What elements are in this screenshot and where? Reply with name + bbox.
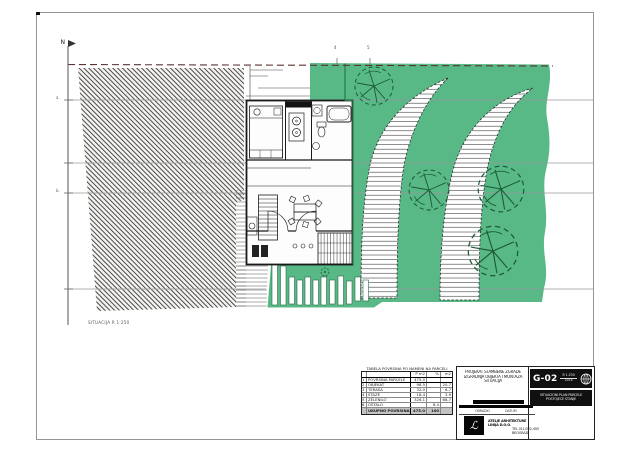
table-cell: 32.0	[411, 388, 427, 392]
table-cell: 326.1	[411, 398, 427, 402]
table-cell: TERASA	[367, 388, 411, 392]
col-header: %	[427, 372, 441, 377]
drawing-sheet: N a. b. 4 5 SITUACIJA R 1:250 TABELA POV…	[0, 0, 640, 452]
logo-mark: ℒ	[470, 419, 478, 432]
table-cell: 8.4	[427, 403, 441, 407]
table-cell: POVRSINA PARCELE	[367, 378, 411, 382]
table-cell: 475.0	[411, 408, 427, 414]
firm-name: ATELJE ARHITEKTURE LINIJA D.O.O.	[488, 419, 530, 427]
table-cell	[411, 403, 427, 407]
table-cell	[441, 378, 452, 382]
contact-line: BEOGRAD	[512, 431, 552, 435]
signature-label: DATUM	[505, 409, 516, 413]
north-arrow-icon: N	[61, 39, 77, 325]
scale-sub: 2014	[560, 379, 576, 383]
table-cell	[441, 408, 452, 414]
scale-note: SITUACIJA R 1:250	[88, 320, 130, 325]
table-cell: 100	[427, 408, 441, 414]
table-cell	[427, 398, 441, 402]
firm-contact: TEL 011/322-455 BEOGRAD	[512, 427, 552, 435]
table-cell	[427, 388, 441, 392]
stamp-line: POSTOJECE STANJE	[530, 397, 592, 401]
top-tick-label: 5	[367, 45, 370, 50]
sheet-code-box: G-02 R 1:250 2014	[530, 369, 592, 388]
north-label: N	[61, 39, 66, 46]
col-header: m2	[441, 372, 452, 377]
area-table-rows: 1POVRSINA PARCELE475.02OBJEKAT98.520.73T…	[362, 378, 452, 414]
left-tick-label: a.	[56, 95, 60, 100]
hatched-terrain-area	[78, 68, 244, 311]
table-row: UKUPNO POVRSINA475.0100	[362, 408, 452, 414]
table-cell	[427, 378, 441, 382]
table-cell	[427, 383, 441, 387]
firm-logo: ℒ	[464, 416, 484, 435]
building-floor-plan	[246, 101, 353, 265]
area-balance-table: TABELA POVRSINA PO NAMENI NA PARCELI P m…	[361, 366, 453, 415]
top-tick-label: 4	[334, 45, 337, 50]
signature-line	[459, 414, 535, 415]
signature-label: OBRADIO	[475, 409, 490, 413]
table-caption: TABELA POVRSINA PO NAMENI NA PARCELI	[361, 366, 453, 371]
table-cell: 98.5	[411, 383, 427, 387]
frame-corner-mark	[36, 12, 40, 15]
sheet-code: G-02	[533, 374, 557, 384]
scale-fraction: R 1:250 2014	[560, 374, 576, 382]
col-header: P m2	[411, 372, 427, 377]
table-cell: OBJEKAT	[367, 383, 411, 387]
shrub-icon	[324, 271, 326, 273]
drawing-title-box: SITUACIONI PLAN PARCELE POSTOJECE STANJE	[530, 390, 592, 406]
project-line: SITUACIJA	[458, 379, 528, 384]
table-cell: UKUPNO POVRSINA	[367, 408, 411, 414]
table-cell: OSTALO	[367, 403, 411, 407]
table-cell: ZELENILO	[367, 398, 411, 402]
redacted-bar	[473, 400, 524, 404]
table-cell	[427, 393, 441, 397]
table-cell: 68.7	[441, 398, 452, 402]
table-cell: 475.0	[411, 378, 427, 382]
globe-icon	[580, 373, 592, 385]
table-cell	[441, 403, 452, 407]
table-cell: 20.7	[441, 383, 452, 387]
redacted-bar	[459, 405, 533, 409]
table-cell: 3.9	[441, 393, 452, 397]
title-block: PROJEKAT STAMBENE ZGRADE IZGRADNJA OBJEK…	[456, 366, 595, 440]
project-title: PROJEKAT STAMBENE ZGRADE IZGRADNJA OBJEK…	[458, 370, 528, 384]
table-cell: STAZE	[367, 393, 411, 397]
table-cell: 6.7	[441, 388, 452, 392]
left-tick-label: b.	[56, 188, 60, 193]
table-cell: 18.4	[411, 393, 427, 397]
ground-hachure-strip	[236, 265, 268, 307]
